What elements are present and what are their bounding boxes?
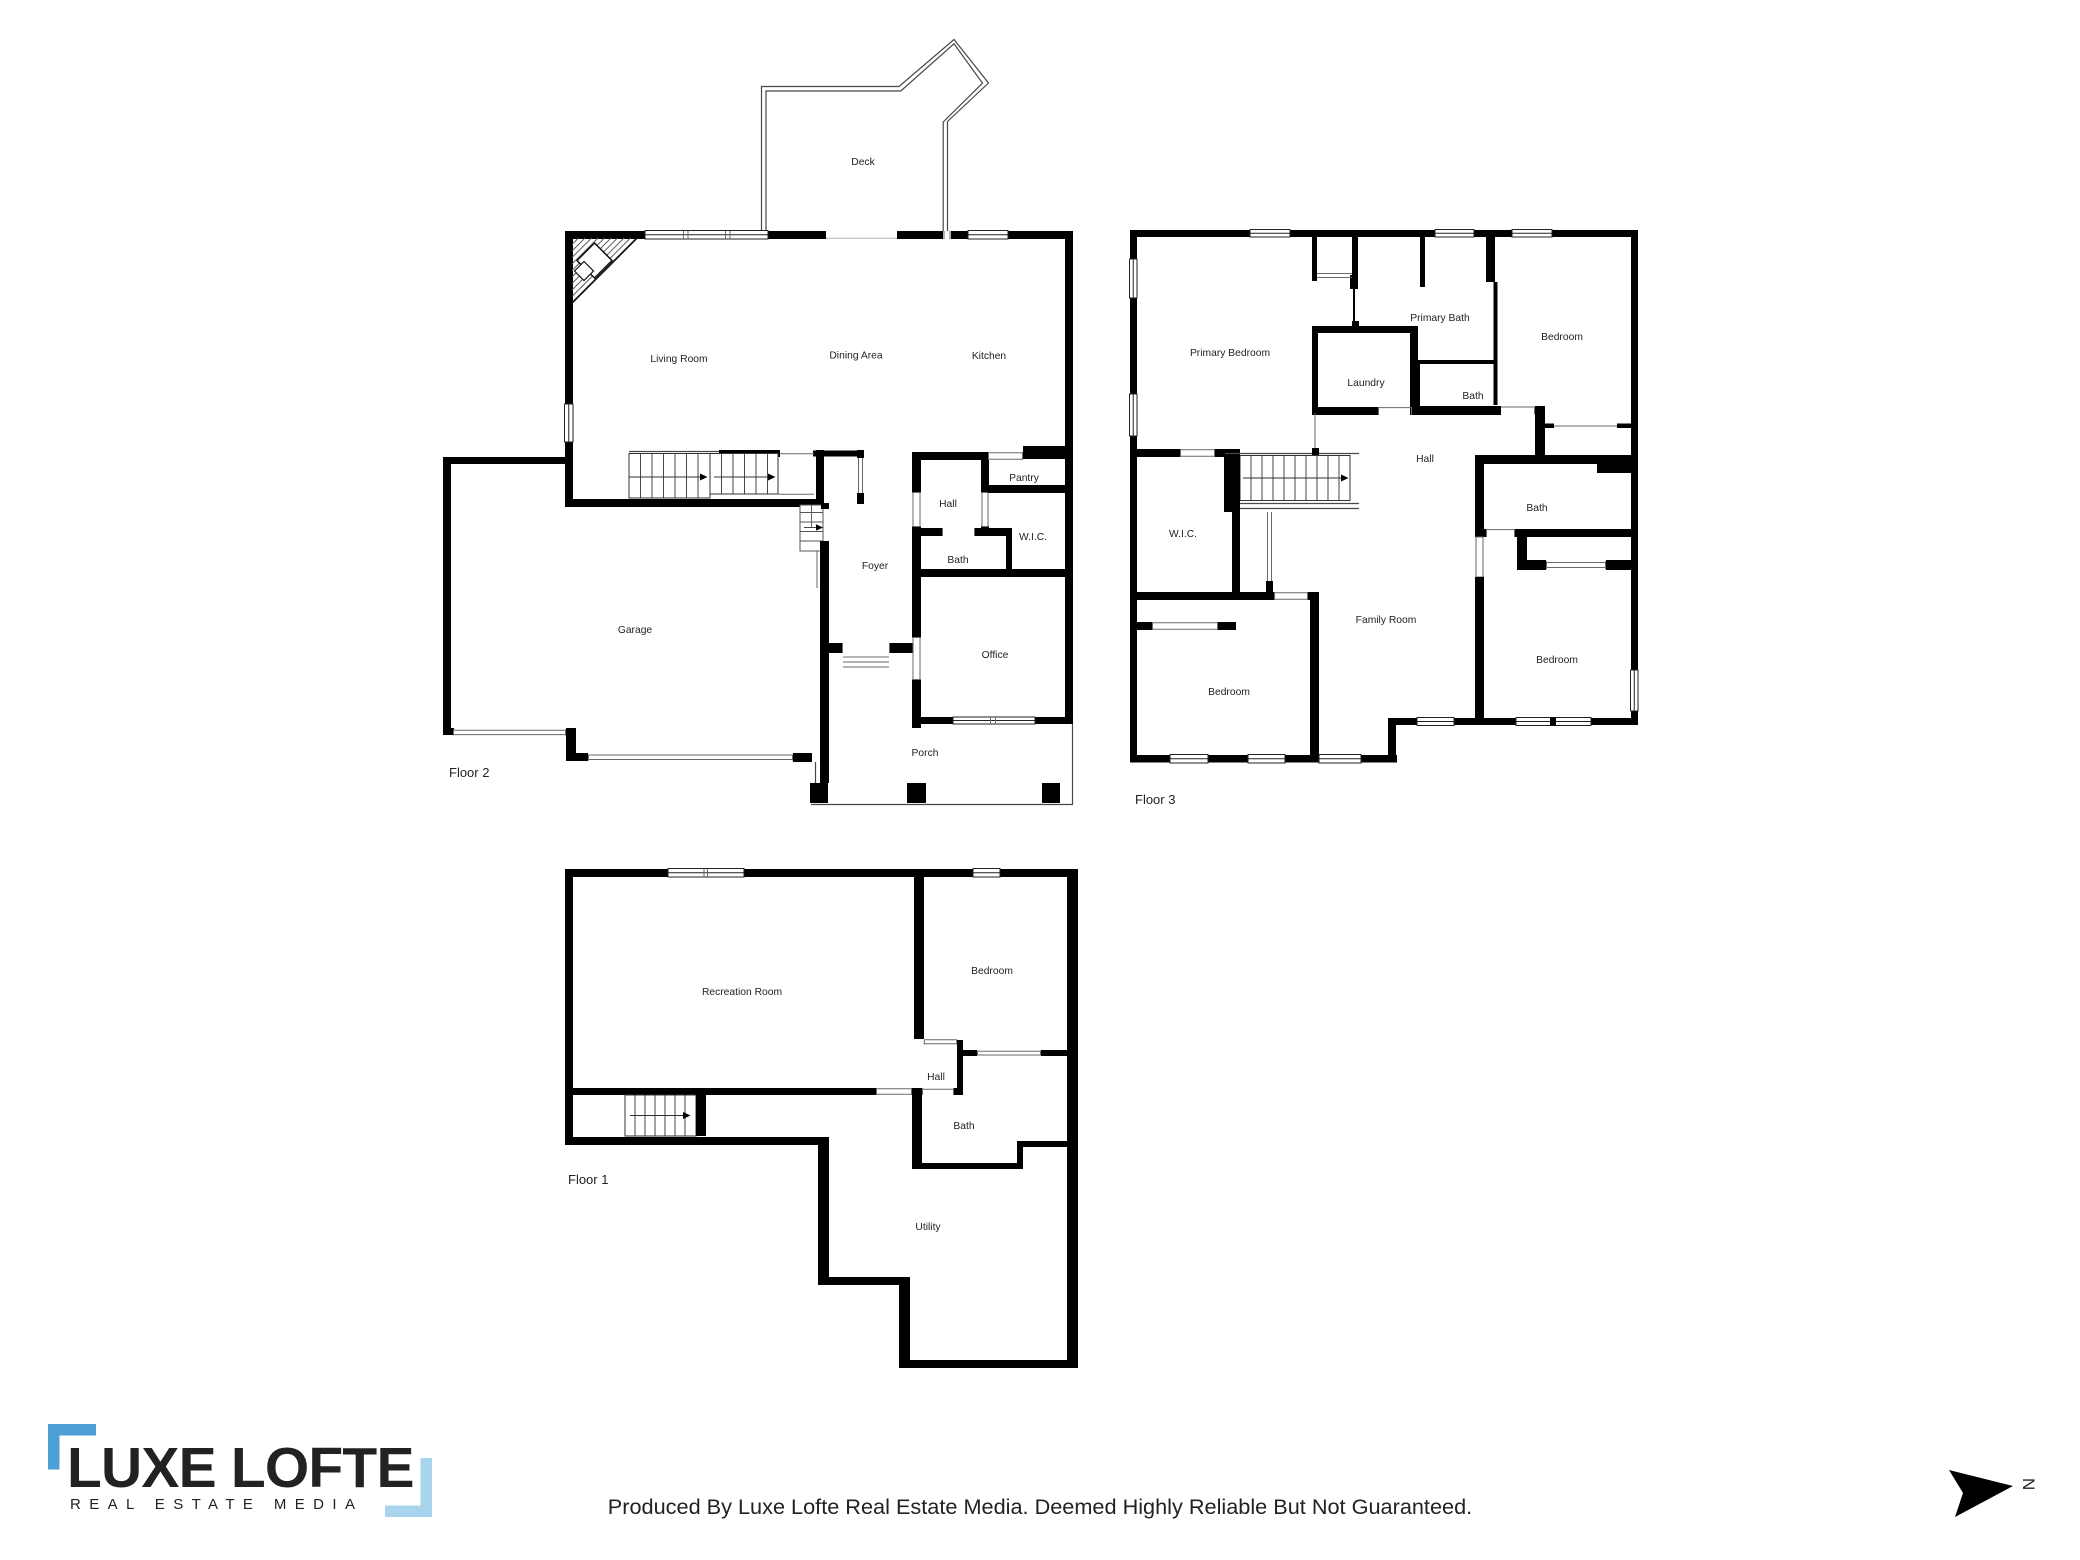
svg-text:Porch: Porch <box>912 748 939 759</box>
svg-text:Bath: Bath <box>953 1121 974 1132</box>
svg-text:Living Room: Living Room <box>650 354 707 365</box>
svg-text:Floor 3: Floor 3 <box>1135 792 1175 807</box>
svg-text:Hall: Hall <box>939 499 957 510</box>
svg-text:W.I.C.: W.I.C. <box>1169 529 1197 540</box>
svg-text:Bath: Bath <box>1462 391 1483 402</box>
svg-text:Produced By Luxe Lofte Real Es: Produced By Luxe Lofte Real Estate Media… <box>608 1494 1472 1519</box>
svg-text:Family Room: Family Room <box>1356 615 1417 626</box>
svg-text:Foyer: Foyer <box>862 561 889 572</box>
svg-text:Kitchen: Kitchen <box>972 351 1007 362</box>
svg-text:Bath: Bath <box>947 555 968 566</box>
svg-text:Deck: Deck <box>851 157 875 168</box>
svg-text:Bedroom: Bedroom <box>971 966 1013 977</box>
svg-text:N: N <box>2019 1478 2038 1490</box>
svg-text:Bath: Bath <box>1526 503 1547 514</box>
svg-text:Primary Bath: Primary Bath <box>1410 313 1470 324</box>
svg-text:Garage: Garage <box>618 625 653 636</box>
svg-text:Hall: Hall <box>1416 454 1434 465</box>
svg-text:Dining Area: Dining Area <box>829 351 883 362</box>
svg-text:REAL ESTATE MEDIA: REAL ESTATE MEDIA <box>70 1496 363 1513</box>
svg-text:Primary Bedroom: Primary Bedroom <box>1190 348 1270 359</box>
svg-text:W.I.C.: W.I.C. <box>1019 532 1047 543</box>
svg-text:Hall: Hall <box>927 1072 945 1083</box>
svg-text:LUXE LOFTE: LUXE LOFTE <box>67 1436 414 1500</box>
svg-text:Bedroom: Bedroom <box>1536 655 1578 666</box>
svg-text:Utility: Utility <box>915 1222 941 1233</box>
svg-text:Bedroom: Bedroom <box>1208 687 1250 698</box>
svg-text:Pantry: Pantry <box>1009 473 1040 484</box>
svg-text:Laundry: Laundry <box>1347 378 1385 389</box>
svg-text:Bedroom: Bedroom <box>1541 332 1583 343</box>
svg-text:Floor 1: Floor 1 <box>568 1172 608 1187</box>
svg-text:Office: Office <box>982 650 1009 661</box>
svg-text:Recreation Room: Recreation Room <box>702 987 782 998</box>
svg-text:Floor 2: Floor 2 <box>449 765 489 780</box>
